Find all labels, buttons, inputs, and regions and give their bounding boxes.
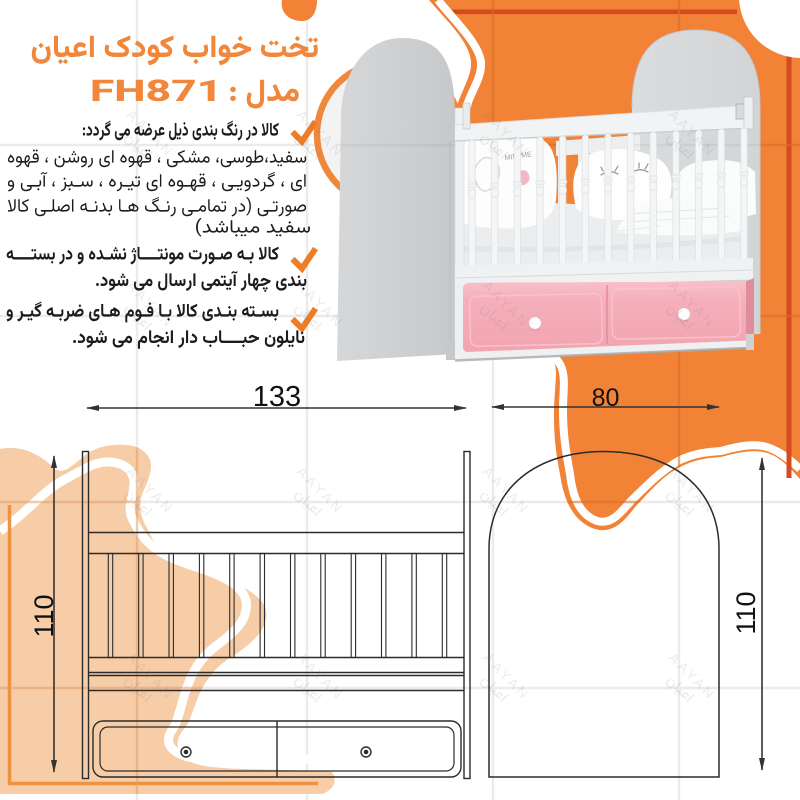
svg-text:133: 133: [253, 381, 301, 413]
svg-text:110: 110: [29, 594, 59, 637]
svg-text:80: 80: [592, 384, 620, 412]
svg-text:110: 110: [731, 591, 761, 634]
